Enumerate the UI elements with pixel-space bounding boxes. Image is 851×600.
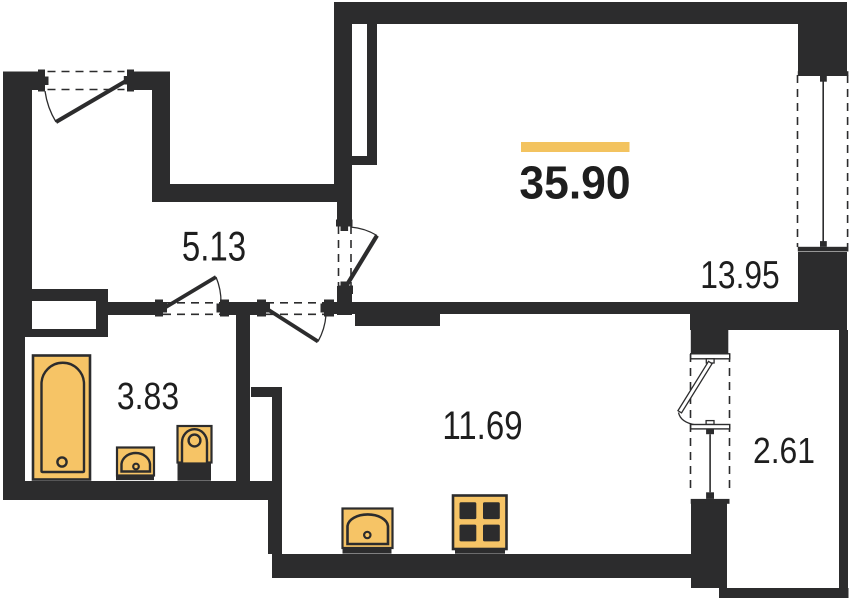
svg-text:2.61: 2.61 — [753, 431, 815, 471]
svg-text:3.83: 3.83 — [117, 375, 179, 417]
svg-text:11.69: 11.69 — [442, 403, 522, 448]
svg-text:5.13: 5.13 — [182, 223, 246, 269]
svg-text:35.90: 35.90 — [519, 157, 630, 209]
svg-text:13.95: 13.95 — [700, 253, 779, 297]
